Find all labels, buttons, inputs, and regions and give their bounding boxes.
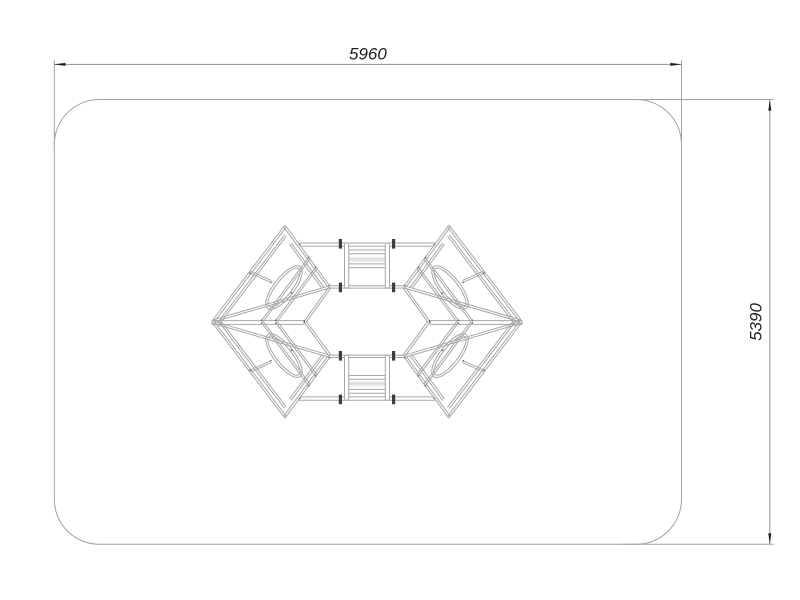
svg-text:5390: 5390 <box>747 303 766 341</box>
svg-text:5960: 5960 <box>349 45 387 64</box>
